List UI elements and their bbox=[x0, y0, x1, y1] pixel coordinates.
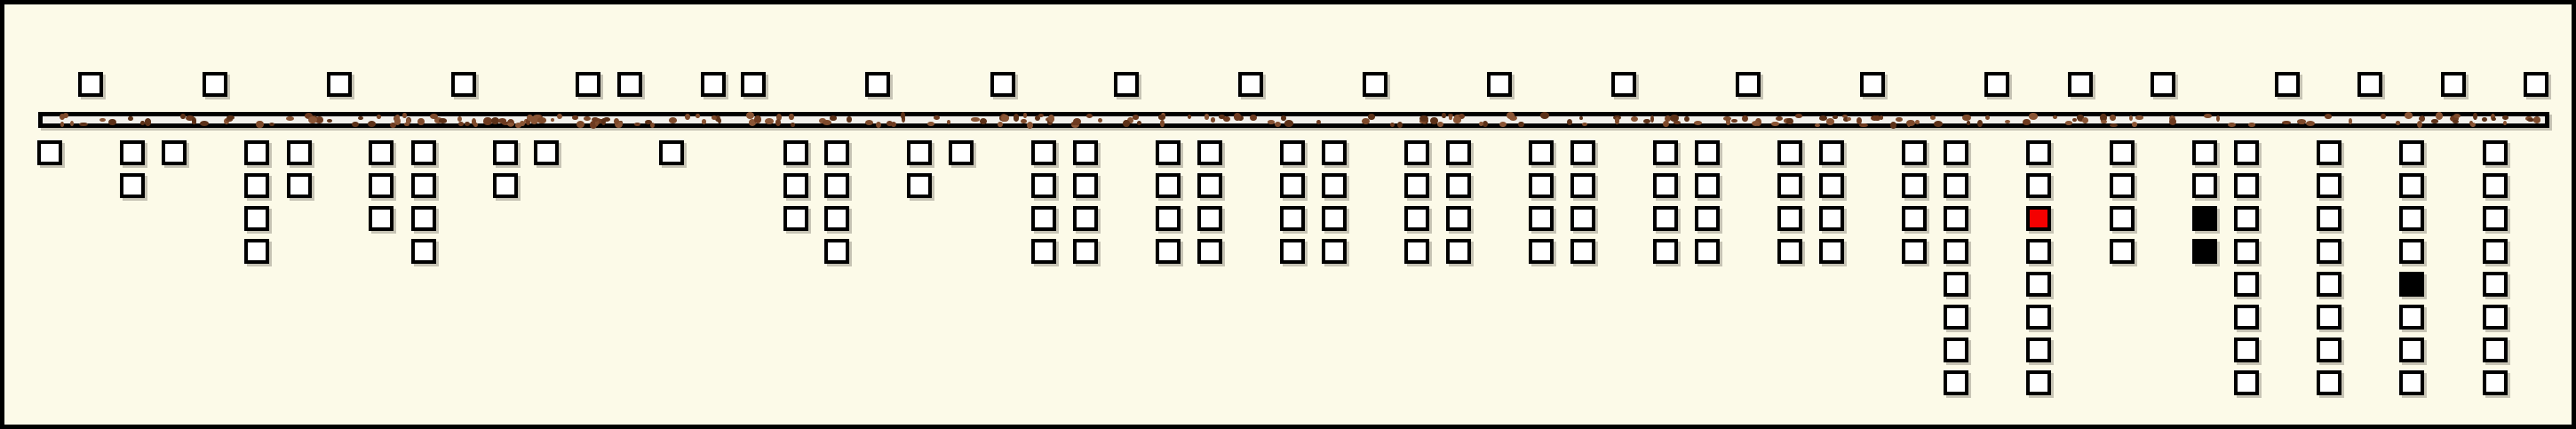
top-marker-square bbox=[617, 72, 642, 97]
stack-marker-square bbox=[2399, 370, 2424, 395]
stack-marker-square bbox=[1902, 140, 1927, 165]
stack-marker-square bbox=[824, 239, 849, 264]
top-marker-square bbox=[327, 72, 352, 97]
speckle-dot bbox=[457, 116, 462, 122]
speckle-dot bbox=[1397, 122, 1403, 128]
speckle-dot bbox=[1071, 122, 1077, 125]
speckle-dot bbox=[145, 118, 152, 125]
speckle-dot bbox=[1771, 122, 1779, 127]
speckle-dot bbox=[2204, 114, 2212, 118]
speckle-dot bbox=[1833, 115, 1837, 119]
top-marker-square bbox=[741, 72, 766, 97]
speckle-dot bbox=[1815, 123, 1821, 127]
stack-marker-square bbox=[369, 140, 394, 165]
stack-marker-square bbox=[1819, 206, 1844, 231]
speckle-dot bbox=[823, 120, 831, 125]
speckle-dot bbox=[1643, 119, 1650, 123]
stack-marker-square bbox=[2234, 173, 2259, 198]
speckle-dot bbox=[2482, 117, 2487, 122]
speckle-dot bbox=[1934, 121, 1943, 127]
stack-marker-square bbox=[2110, 173, 2135, 198]
stack-marker-square bbox=[1446, 173, 1471, 198]
speckle-dot bbox=[1234, 113, 1242, 120]
stack-marker-square bbox=[1944, 239, 1968, 264]
speckle-dot bbox=[712, 115, 717, 120]
speckle-dot bbox=[180, 114, 186, 120]
speckle-dot bbox=[1048, 115, 1053, 123]
stack-marker-square bbox=[1073, 206, 1098, 231]
stack-marker-square bbox=[1653, 173, 1678, 198]
speckle-dot bbox=[1284, 120, 1293, 127]
speckle-dot bbox=[140, 121, 145, 125]
speckle-dot bbox=[2306, 121, 2315, 126]
stack-marker-square bbox=[1322, 239, 1347, 264]
speckle-dot bbox=[1275, 122, 1281, 127]
speckle-dot bbox=[702, 119, 707, 124]
top-marker-square bbox=[2441, 72, 2466, 97]
speckle-dot bbox=[1027, 122, 1033, 129]
speckle-dot bbox=[2029, 113, 2038, 120]
stack-marker-square bbox=[1446, 239, 1471, 264]
stack-marker-square bbox=[244, 140, 269, 165]
speckle-dot bbox=[947, 120, 950, 124]
stack-marker-square bbox=[907, 173, 932, 198]
speckle-dot bbox=[256, 121, 263, 128]
stack-marker-square bbox=[2317, 140, 2341, 165]
speckle-dot bbox=[1731, 119, 1737, 123]
stack-marker-square bbox=[1446, 206, 1471, 231]
speckle-dot bbox=[108, 119, 115, 125]
speckle-dot bbox=[865, 120, 873, 125]
stack-marker-square bbox=[1777, 173, 1802, 198]
speckle-dot bbox=[60, 114, 65, 120]
speckle-dot bbox=[584, 116, 591, 121]
stack-marker-square bbox=[244, 239, 269, 264]
stack-marker-square bbox=[1777, 206, 1802, 231]
stack-marker-square bbox=[369, 206, 394, 231]
stack-marker-square bbox=[244, 206, 269, 231]
stack-marker-square bbox=[1777, 239, 1802, 264]
speckle-dot bbox=[1826, 118, 1834, 124]
stack-marker-square bbox=[2026, 272, 2051, 297]
top-marker-square bbox=[1238, 72, 1263, 97]
top-marker-square bbox=[2275, 72, 2300, 97]
stack-marker-square bbox=[2483, 173, 2508, 198]
stack-marker-square bbox=[2026, 338, 2051, 362]
speckle-dot bbox=[1419, 115, 1427, 122]
stack-marker-square bbox=[2317, 239, 2341, 264]
stack-marker-square bbox=[2026, 370, 2051, 395]
stack-marker-square bbox=[411, 239, 436, 264]
top-marker-square bbox=[1860, 72, 1885, 97]
stack-marker-square bbox=[244, 173, 269, 198]
speckle-dot bbox=[2470, 123, 2476, 127]
stack-marker-square bbox=[2483, 272, 2508, 297]
speckle-dot bbox=[603, 117, 610, 122]
stack-marker-square bbox=[1073, 173, 1098, 198]
speckle-dot bbox=[1723, 116, 1732, 121]
speckle-dot bbox=[430, 114, 438, 120]
speckle-dot bbox=[901, 112, 904, 119]
stack-marker-square bbox=[2026, 305, 2051, 330]
stack-marker-square bbox=[1073, 140, 1098, 165]
speckle-dot bbox=[439, 118, 447, 123]
stack-marker-square bbox=[1446, 140, 1471, 165]
black-marker-square bbox=[2399, 272, 2424, 297]
stack-marker-square bbox=[1280, 239, 1305, 264]
stack-marker-square bbox=[949, 140, 974, 165]
top-marker-square bbox=[1487, 72, 1512, 97]
speckle-dot bbox=[1205, 114, 1210, 119]
speckle-dot bbox=[1453, 116, 1462, 123]
stack-marker-square bbox=[1944, 305, 1968, 330]
speckle-dot bbox=[1098, 118, 1102, 123]
stack-marker-square bbox=[1031, 173, 1056, 198]
stack-marker-square bbox=[2483, 239, 2508, 264]
stack-marker-square bbox=[2317, 173, 2341, 198]
stack-marker-square bbox=[37, 140, 62, 165]
stack-marker-square bbox=[2234, 239, 2259, 264]
stack-marker-square bbox=[1404, 173, 1429, 198]
speckle-dot bbox=[1890, 122, 1896, 129]
stack-marker-square bbox=[1529, 239, 1554, 264]
speckle-dot bbox=[128, 116, 132, 121]
stack-marker-square bbox=[2483, 338, 2508, 362]
speckle-dot bbox=[934, 115, 940, 120]
speckle-dot bbox=[2216, 115, 2220, 122]
speckle-dot bbox=[891, 122, 897, 127]
speckle-dot bbox=[2065, 121, 2072, 125]
speckle-dot bbox=[465, 122, 470, 126]
red-marker-square bbox=[2026, 206, 2051, 231]
speckle-dot bbox=[2396, 121, 2401, 125]
speckle-dot bbox=[576, 121, 584, 128]
stack-marker-square bbox=[783, 173, 808, 198]
speckle-dot bbox=[1158, 115, 1165, 119]
stack-marker-square bbox=[2399, 206, 2424, 231]
speckle-dot bbox=[1930, 115, 1936, 120]
speckle-dot bbox=[791, 123, 796, 127]
top-marker-square bbox=[2068, 72, 2093, 97]
stack-marker-square bbox=[1404, 239, 1429, 264]
speckle-dot bbox=[696, 114, 700, 119]
stack-marker-square bbox=[2399, 305, 2424, 330]
speckle-dot bbox=[2135, 115, 2143, 120]
stack-marker-square bbox=[1073, 239, 1098, 264]
speckle-dot bbox=[1001, 115, 1008, 122]
speckle-dot bbox=[2082, 117, 2088, 123]
speckle-dot bbox=[2325, 114, 2332, 118]
stack-marker-square bbox=[1529, 173, 1554, 198]
stack-marker-square bbox=[2317, 370, 2341, 395]
stack-marker-square bbox=[1695, 140, 1720, 165]
speckle-dot bbox=[789, 114, 793, 121]
stack-marker-square bbox=[1280, 173, 1305, 198]
stack-marker-square bbox=[1653, 239, 1678, 264]
stack-marker-square bbox=[1902, 206, 1927, 231]
stack-marker-square bbox=[2317, 206, 2341, 231]
speckle-dot bbox=[1268, 120, 1276, 124]
speckle-dot bbox=[1880, 115, 1883, 120]
stack-marker-square bbox=[1197, 239, 1222, 264]
top-marker-square bbox=[78, 72, 103, 97]
speckle-dot bbox=[1014, 114, 1020, 121]
stack-marker-square bbox=[1695, 173, 1720, 198]
stack-marker-square bbox=[2317, 338, 2341, 362]
stack-marker-square bbox=[411, 206, 436, 231]
speckle-dot bbox=[2110, 115, 2116, 120]
black-marker-square bbox=[2192, 239, 2217, 264]
stack-marker-square bbox=[162, 140, 187, 165]
stack-marker-square bbox=[1570, 206, 1595, 231]
speckle-dot bbox=[634, 123, 640, 127]
speckle-dot bbox=[2005, 120, 2010, 123]
stack-marker-square bbox=[2399, 338, 2424, 362]
stack-marker-square bbox=[1156, 173, 1181, 198]
speckle-dot bbox=[2072, 118, 2077, 122]
top-marker-square bbox=[2151, 72, 2175, 97]
speckle-dot bbox=[377, 115, 382, 119]
speckle-dot bbox=[1160, 120, 1164, 127]
top-marker-square bbox=[1114, 72, 1139, 97]
speckle-dot bbox=[1906, 120, 1915, 127]
stack-marker-square bbox=[411, 173, 436, 198]
speckle-dot bbox=[1615, 117, 1618, 124]
speckle-dot bbox=[1915, 120, 1920, 124]
speckle-dot bbox=[1123, 120, 1130, 128]
stack-marker-square bbox=[1819, 239, 1844, 264]
speckle-dot bbox=[1859, 123, 1867, 127]
speckle-dot bbox=[515, 123, 521, 128]
top-marker-square bbox=[451, 72, 476, 97]
stack-marker-square bbox=[2483, 305, 2508, 330]
stack-marker-square bbox=[1322, 140, 1347, 165]
stack-marker-square bbox=[1031, 206, 1056, 231]
speckle-dot bbox=[847, 116, 852, 122]
stack-marker-square bbox=[1944, 173, 1968, 198]
speckle-dot bbox=[1786, 118, 1793, 125]
stack-marker-square bbox=[2317, 272, 2341, 297]
speckle-dot bbox=[2101, 120, 2106, 124]
speckle-dot bbox=[2419, 116, 2424, 120]
speckle-dot bbox=[998, 122, 1002, 127]
stack-marker-square bbox=[2399, 140, 2424, 165]
speckle-dot bbox=[1518, 122, 1523, 127]
stack-marker-square bbox=[2483, 206, 2508, 231]
stack-marker-square bbox=[783, 206, 808, 231]
speckle-dot bbox=[1086, 114, 1093, 118]
speckle-dot bbox=[352, 122, 359, 128]
stack-marker-square bbox=[783, 140, 808, 165]
stack-marker-square bbox=[2110, 239, 2135, 264]
speckle-dot bbox=[2023, 119, 2031, 126]
top-marker-square bbox=[1363, 72, 1387, 97]
stack-marker-square bbox=[2234, 140, 2259, 165]
speckle-dot bbox=[1430, 117, 1438, 124]
stack-marker-square bbox=[824, 140, 849, 165]
stack-marker-square bbox=[1570, 173, 1595, 198]
stack-marker-square bbox=[1902, 173, 1927, 198]
stack-marker-square bbox=[1156, 239, 1181, 264]
top-marker-square bbox=[990, 72, 1015, 97]
speckle-dot bbox=[1871, 115, 1879, 121]
top-marker-square bbox=[701, 72, 726, 97]
speckle-dot bbox=[227, 115, 234, 120]
speckle-dot bbox=[1650, 115, 1654, 123]
stack-marker-square bbox=[1944, 140, 1968, 165]
stack-marker-square bbox=[1322, 206, 1347, 231]
stack-marker-square bbox=[2026, 173, 2051, 198]
stack-marker-square bbox=[1197, 173, 1222, 198]
black-marker-square bbox=[2192, 206, 2217, 231]
top-marker-square bbox=[865, 72, 890, 97]
stack-marker-square bbox=[1944, 338, 1968, 362]
stack-marker-square bbox=[2234, 338, 2259, 362]
speckle-dot bbox=[200, 121, 209, 126]
stack-marker-square bbox=[120, 140, 145, 165]
speckle-dot bbox=[2248, 123, 2256, 127]
stack-marker-square bbox=[2483, 140, 2508, 165]
stack-marker-square bbox=[2110, 140, 2135, 165]
speckle-dot bbox=[765, 118, 774, 124]
speckle-dot bbox=[2169, 118, 2176, 125]
speckle-dot bbox=[99, 118, 106, 123]
speckle-dot bbox=[1795, 114, 1802, 118]
stack-marker-square bbox=[1570, 239, 1595, 264]
speckle-dot bbox=[1250, 115, 1257, 122]
stack-marker-square bbox=[2026, 239, 2051, 264]
speckle-dot bbox=[527, 115, 533, 121]
stack-marker-square bbox=[1280, 140, 1305, 165]
stack-marker-square bbox=[907, 140, 932, 165]
stack-marker-square bbox=[1695, 206, 1720, 231]
stack-marker-square bbox=[287, 173, 312, 198]
speckle-dot bbox=[417, 118, 425, 125]
stack-marker-square bbox=[1902, 239, 1927, 264]
speckle-dot bbox=[1582, 123, 1587, 126]
speckle-dot bbox=[1368, 114, 1374, 120]
stack-marker-square bbox=[1819, 140, 1844, 165]
speckle-dot bbox=[498, 118, 506, 123]
stack-marker-square bbox=[1944, 370, 1968, 395]
top-marker-square bbox=[203, 72, 227, 97]
top-marker-square bbox=[2357, 72, 2382, 97]
stack-marker-square bbox=[2399, 173, 2424, 198]
speckle-dot bbox=[308, 116, 317, 123]
speckle-dot bbox=[971, 117, 980, 122]
stack-marker-square bbox=[534, 140, 559, 165]
speckle-dot bbox=[927, 122, 934, 126]
stack-marker-square bbox=[824, 206, 849, 231]
speckle-dot bbox=[2381, 114, 2386, 119]
stack-marker-square bbox=[1944, 272, 1968, 297]
speckle-dot bbox=[1188, 115, 1191, 119]
stack-marker-square bbox=[1156, 206, 1181, 231]
speckle-dot bbox=[406, 118, 410, 125]
speckle-dot bbox=[1499, 122, 1507, 127]
speckle-dot bbox=[557, 114, 562, 119]
speckle-dot bbox=[507, 123, 515, 126]
speckle-dot bbox=[830, 115, 837, 120]
stack-marker-square bbox=[2026, 140, 2051, 165]
stack-marker-square bbox=[1695, 239, 1720, 264]
speckle-dot bbox=[1483, 121, 1488, 127]
stack-marker-square bbox=[1280, 206, 1305, 231]
stack-marker-square bbox=[1529, 140, 1554, 165]
speckle-dot bbox=[286, 116, 294, 121]
stack-marker-square bbox=[2234, 272, 2259, 297]
top-marker-square bbox=[1984, 72, 2009, 97]
speckle-dot bbox=[2473, 113, 2477, 121]
stack-marker-square bbox=[2317, 305, 2341, 330]
stack-marker-square bbox=[2234, 370, 2259, 395]
speckle-dot bbox=[1847, 117, 1851, 121]
speckle-dot bbox=[2349, 118, 2352, 123]
speckle-dot bbox=[685, 114, 689, 120]
stack-marker-square bbox=[659, 140, 684, 165]
stack-marker-square bbox=[1197, 140, 1222, 165]
speckle-dot bbox=[1137, 121, 1141, 125]
stack-marker-square bbox=[2483, 370, 2508, 395]
stack-marker-square bbox=[2110, 206, 2135, 231]
stack-marker-square bbox=[369, 173, 394, 198]
stack-marker-square bbox=[2192, 173, 2217, 198]
speckle-dot bbox=[1442, 113, 1445, 117]
speckle-dot bbox=[1985, 115, 1990, 120]
speckle-dot bbox=[2453, 120, 2458, 123]
speckle-dot bbox=[472, 118, 476, 125]
speckle-dot bbox=[1694, 121, 1702, 125]
stack-marker-square bbox=[1031, 239, 1056, 264]
speckle-dot bbox=[2282, 121, 2291, 124]
speckle-dot bbox=[754, 115, 760, 123]
stack-marker-square bbox=[824, 173, 849, 198]
speckle-dot bbox=[1390, 123, 1395, 127]
stack-marker-square bbox=[2192, 140, 2217, 165]
stack-marker-square bbox=[1197, 206, 1222, 231]
stack-marker-square bbox=[493, 140, 518, 165]
top-marker-square bbox=[1736, 72, 1761, 97]
speckle-dot bbox=[269, 123, 274, 126]
figure-frame bbox=[0, 0, 2576, 429]
speckle-dot bbox=[2228, 123, 2236, 127]
speckle-dot bbox=[2110, 123, 2117, 127]
stack-marker-square bbox=[1944, 206, 1968, 231]
stack-marker-square bbox=[1653, 140, 1678, 165]
stack-marker-square bbox=[287, 140, 312, 165]
speckle-dot bbox=[614, 118, 619, 124]
stack-marker-square bbox=[1570, 140, 1595, 165]
stack-marker-square bbox=[1819, 173, 1844, 198]
stack-marker-square bbox=[2234, 206, 2259, 231]
top-marker-square bbox=[1611, 72, 1636, 97]
speckle-dot bbox=[1962, 115, 1971, 122]
stack-marker-square bbox=[493, 173, 518, 198]
stack-marker-square bbox=[411, 140, 436, 165]
speckle-dot bbox=[395, 115, 401, 120]
stack-marker-square bbox=[1777, 140, 1802, 165]
speckle-dot bbox=[537, 117, 545, 123]
speckle-dot bbox=[2297, 119, 2306, 123]
stack-marker-square bbox=[120, 173, 145, 198]
stack-marker-square bbox=[2399, 239, 2424, 264]
stack-marker-square bbox=[1031, 140, 1056, 165]
stack-marker-square bbox=[1156, 140, 1181, 165]
stack-marker-square bbox=[2234, 305, 2259, 330]
top-marker-square bbox=[576, 72, 600, 97]
speckle-dot bbox=[1567, 119, 1572, 125]
stack-marker-square bbox=[1322, 173, 1347, 198]
